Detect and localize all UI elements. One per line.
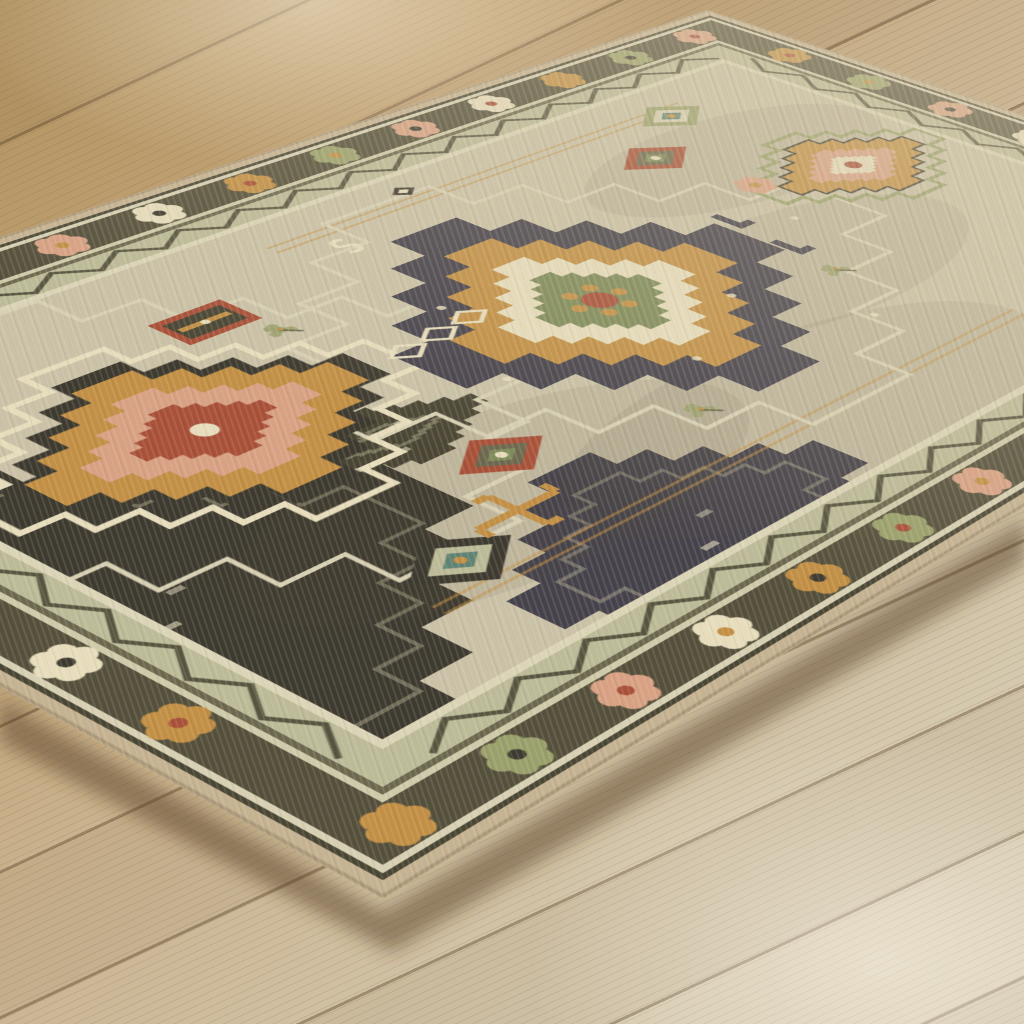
scene: Angled close-up photo of a beige, olive,… <box>0 0 1024 1024</box>
